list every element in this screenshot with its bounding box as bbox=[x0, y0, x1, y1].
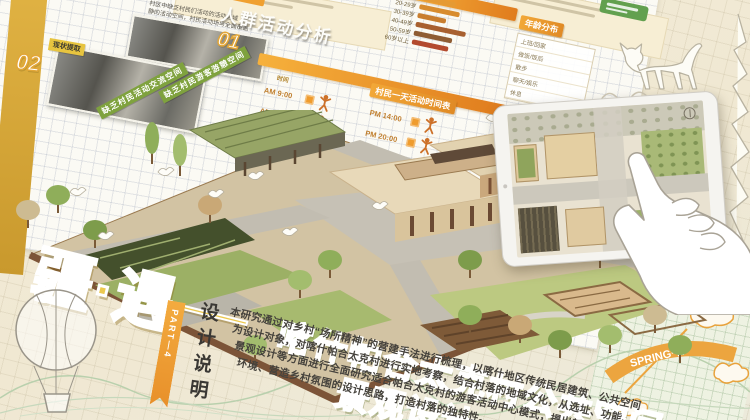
section02-number: 02 bbox=[15, 49, 42, 77]
activity-tag-icon bbox=[304, 94, 315, 105]
pointing-hand-icon bbox=[560, 140, 750, 315]
plan-slat-rows bbox=[518, 206, 560, 253]
design-poster: 02 村区中缺乏村民们活动的活动区域 静的活动空间，村民活动场与全面覆盖 现状提… bbox=[0, 0, 750, 420]
hot-air-balloon-icon bbox=[0, 282, 154, 420]
tablet-camera-icon bbox=[503, 184, 507, 188]
plan-courtyard bbox=[517, 148, 537, 178]
section01-number: 01 bbox=[215, 28, 242, 55]
timetable-time: AM 9:00 bbox=[263, 86, 302, 103]
